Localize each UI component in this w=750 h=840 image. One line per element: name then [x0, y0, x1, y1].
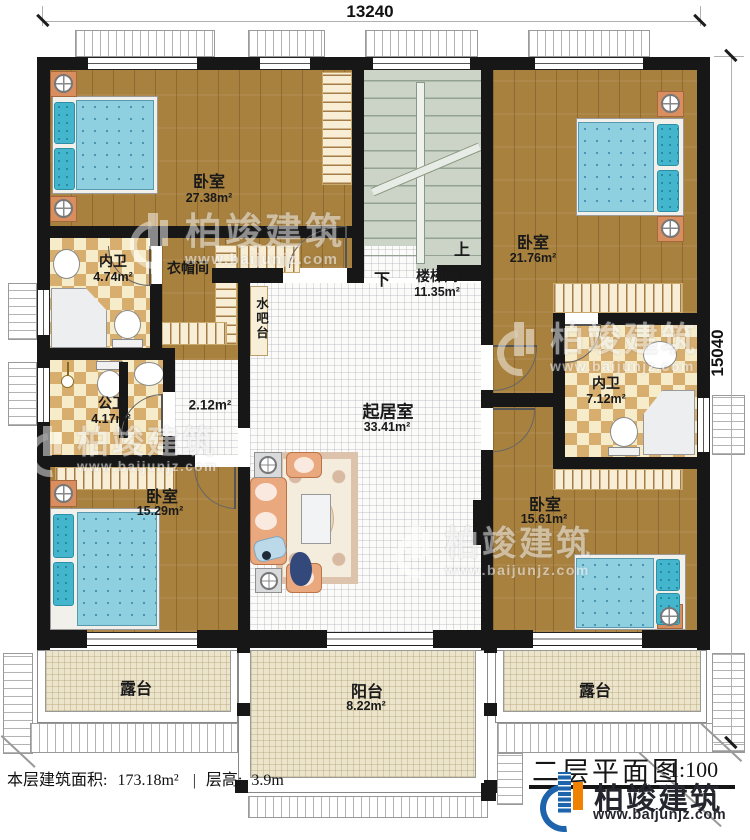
window — [87, 632, 197, 646]
bed-mattress — [76, 100, 154, 190]
wall-exterior-bottom — [642, 630, 710, 648]
window-sill — [75, 30, 215, 57]
eave-hatch — [248, 796, 488, 818]
floor-stats-prefix: 本层建筑面积: — [7, 772, 107, 789]
post — [484, 640, 497, 653]
room-area-stairwell: 11.35m² — [414, 285, 460, 299]
window-sill — [712, 395, 745, 455]
floor-stats-area: 173.18m² — [117, 772, 178, 789]
hanging-lamp-icon — [61, 375, 74, 388]
room-area-hallway: 2.12m² — [189, 398, 232, 413]
balcony-slider — [327, 632, 433, 646]
door-leaf — [345, 226, 347, 268]
room-label-bedroom-tr: 卧室 — [517, 229, 549, 253]
wall-waterbar-top — [212, 268, 283, 283]
bed-mattress — [77, 512, 157, 626]
eave-hatch — [3, 653, 33, 754]
wall-waterbar-top — [347, 268, 364, 283]
lamp-icon — [660, 607, 679, 626]
toilet-tank — [112, 339, 143, 348]
area-balcony: 8.22m² — [346, 699, 386, 713]
wall-ensuite-r-north — [553, 313, 565, 325]
wall-ensuite-r-north — [598, 313, 697, 325]
lamp-cord — [67, 362, 69, 376]
room-area-ensuite-tl: 4.74m² — [93, 270, 133, 284]
eave-hatch — [497, 753, 523, 805]
bed-pillow — [53, 514, 74, 558]
eave-hatch — [30, 723, 238, 753]
window — [535, 57, 643, 70]
room-label-living: 起居室 — [363, 398, 414, 423]
door-leaf — [565, 324, 601, 326]
dimension-top-label: 13240 — [328, 2, 412, 22]
window-sill — [365, 30, 478, 57]
lamp-icon — [661, 219, 680, 238]
wall-bedroom-bl-north — [37, 455, 195, 467]
brand-website: www.baijunjz.com — [593, 807, 726, 823]
toilet — [114, 310, 141, 339]
room-label-ensuite-tl: 内卫 — [99, 251, 127, 271]
floor-stats-divider: | — [193, 772, 196, 790]
sofa-cushion — [294, 457, 314, 473]
door-leaf — [493, 345, 537, 347]
post — [237, 703, 250, 716]
wall-stair-left — [352, 57, 364, 283]
post — [484, 703, 497, 716]
floor-stats: 本层建筑面积: 173.18m² | 层高: 3.9m — [7, 766, 284, 790]
dimension-right-ext-top — [714, 56, 744, 57]
balcony-floor — [250, 650, 476, 778]
wall-living-east — [481, 57, 493, 345]
bed-pillow — [657, 124, 679, 166]
lamp-icon — [260, 572, 278, 590]
bedroom-br-wardrobe — [553, 469, 683, 490]
basin — [643, 341, 677, 369]
lamp-icon — [259, 456, 277, 474]
wall-bath-divider — [37, 348, 175, 360]
room-label-public-bath: 公卫 — [98, 393, 126, 413]
lamp-icon — [54, 484, 73, 503]
window — [533, 632, 642, 646]
room-label-stairwell: 楼梯间 — [416, 266, 458, 286]
bed-pillow — [54, 148, 75, 190]
window — [260, 57, 310, 70]
wall-exterior-bottom — [197, 630, 327, 648]
room-area-bedroom-br: 15.61m² — [521, 512, 568, 526]
wall-ensuite-r-west — [553, 325, 565, 457]
bed-pillow — [657, 170, 679, 212]
wall-ensuite-r-south — [553, 457, 697, 469]
window-sill — [8, 283, 37, 340]
dimension-right-label: 15040 — [708, 313, 728, 393]
label-terrace-right: 露台 — [579, 677, 611, 701]
wall-public-bath-east — [163, 360, 175, 392]
dimension-right-ext-bottom — [714, 744, 744, 745]
room-label-water-bar: 水吧台 — [252, 297, 271, 341]
sofa-cushion — [255, 483, 277, 501]
wall-ensuite-tl-east — [150, 238, 162, 246]
room-area-public-bath: 4.17m² — [91, 412, 131, 426]
door-leaf — [493, 408, 535, 410]
post — [481, 783, 496, 801]
wall-living-west — [238, 283, 250, 428]
bed-pillow — [53, 562, 74, 606]
toilet-tank — [608, 447, 640, 456]
room-label-ensuite-r: 内卫 — [592, 373, 620, 393]
lamp-icon — [661, 94, 680, 113]
window — [373, 57, 470, 70]
room-label-cloakroom: 衣帽间 — [167, 258, 209, 278]
stair-down-label: 下 — [374, 266, 390, 290]
window — [88, 57, 197, 70]
basin — [134, 362, 164, 386]
bed-pillow — [656, 559, 680, 591]
wall-exterior-bottom — [37, 630, 87, 648]
door-leaf — [161, 394, 163, 436]
window — [37, 290, 50, 335]
window-sill — [528, 30, 650, 57]
room-area-ensuite-r: 7.12m² — [586, 392, 626, 406]
label-terrace-left: 露台 — [120, 675, 152, 699]
room-label-bedroom-tl: 卧室 — [193, 168, 225, 192]
floor-plan-canvas: 13240 15040 — [0, 0, 750, 840]
tv-cabinet — [473, 500, 482, 545]
lamp-icon — [54, 74, 73, 93]
wall-living-east — [481, 450, 493, 650]
dimension-top-ext-left — [42, 6, 43, 26]
basin — [53, 249, 80, 279]
wall-living-west — [238, 467, 250, 650]
stair-up-label: 上 — [454, 236, 470, 260]
bed-pillow — [54, 102, 75, 144]
brand-logo-icon — [538, 768, 590, 826]
room-area-bedroom-tl: 27.38m² — [186, 191, 233, 205]
door-leaf — [234, 467, 236, 509]
window-sill — [8, 362, 37, 426]
person-head — [262, 551, 271, 560]
cloakroom-wardrobe-bottom — [160, 322, 227, 345]
floor-stats-height-label: 层高: — [206, 772, 242, 789]
lamp-icon — [54, 199, 73, 218]
bed-mattress — [578, 122, 654, 212]
plant — [290, 552, 312, 586]
bed-mattress — [576, 558, 654, 628]
window-sill — [248, 30, 325, 57]
bedroom-tl-wardrobe — [322, 72, 352, 185]
sofa-cushion — [255, 512, 277, 530]
dimension-right-line — [731, 57, 732, 745]
floor-stats-height: 3.9m — [251, 772, 283, 789]
window — [37, 368, 50, 422]
post — [237, 640, 250, 653]
room-area-bedroom-tr: 21.76m² — [510, 251, 557, 265]
toilet — [610, 417, 638, 447]
coffee-table — [301, 494, 331, 544]
room-area-living: 33.41m² — [364, 420, 411, 434]
wall-nook-divider — [481, 393, 555, 407]
door-leaf — [149, 246, 151, 286]
window — [697, 398, 710, 452]
bedroom-tr-wardrobe — [553, 283, 683, 313]
room-area-bedroom-bl: 15.29m² — [137, 504, 184, 518]
